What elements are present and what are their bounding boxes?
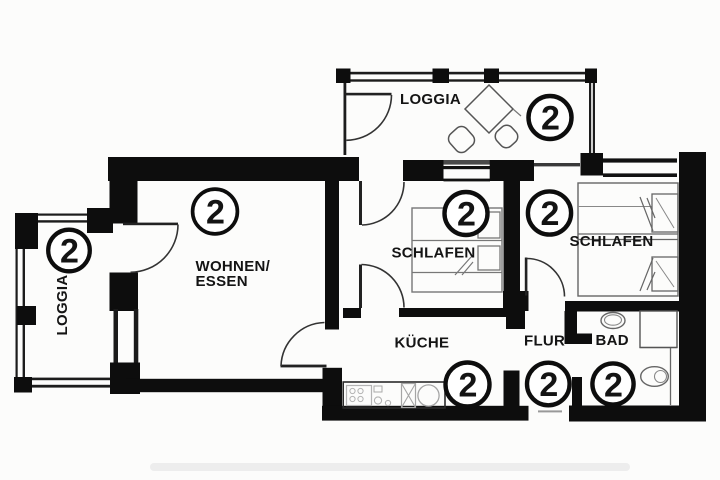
svg-text:SCHLAFEN: SCHLAFEN — [570, 233, 654, 250]
svg-text:SCHLAFEN: SCHLAFEN — [392, 245, 476, 262]
svg-text:2: 2 — [539, 366, 558, 404]
svg-text:FLUR: FLUR — [524, 332, 565, 349]
svg-text:2: 2 — [459, 367, 478, 405]
svg-text:2: 2 — [60, 233, 79, 271]
svg-text:2: 2 — [206, 194, 225, 232]
svg-text:LOGGIA: LOGGIA — [400, 91, 461, 108]
svg-text:BAD: BAD — [596, 332, 629, 349]
svg-text:LOGGIA: LOGGIA — [54, 275, 71, 336]
svg-text:2: 2 — [541, 195, 560, 233]
svg-text:2: 2 — [457, 196, 476, 234]
svg-text:2: 2 — [604, 367, 623, 405]
svg-text:ESSEN: ESSEN — [196, 273, 248, 290]
svg-text:2: 2 — [541, 100, 560, 138]
svg-text:KÜCHE: KÜCHE — [395, 335, 450, 352]
